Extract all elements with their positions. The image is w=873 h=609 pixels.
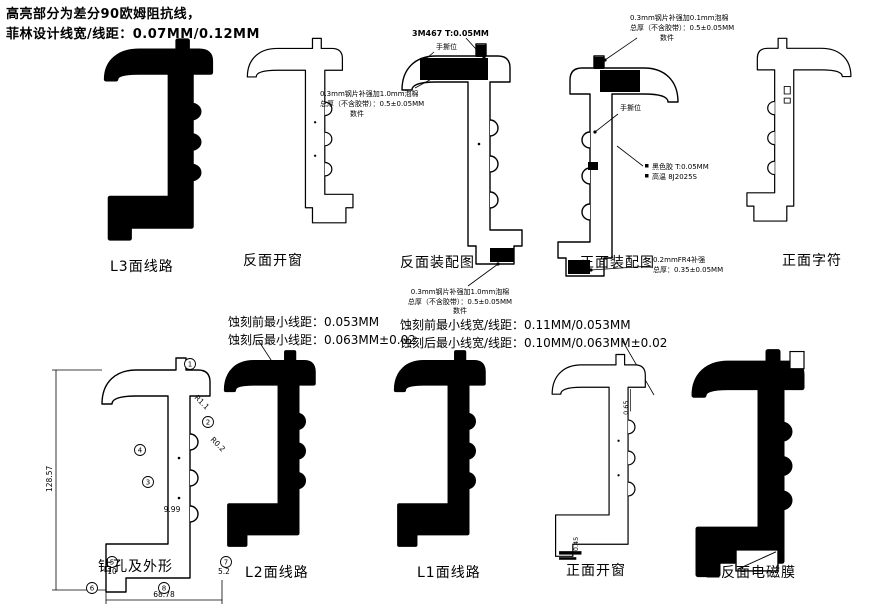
drill-dot — [178, 457, 181, 460]
figure-label-front-assembly: 正面装配图 — [580, 252, 655, 272]
trunk-bumps — [190, 434, 198, 522]
trunk-bumps — [582, 132, 590, 220]
front-silkscreen-drawing — [740, 30, 870, 246]
trunk-bumps — [490, 120, 498, 208]
figure-label-drill-outline: 钻孔及外形 — [98, 556, 173, 576]
balloon-3: 3 — [143, 477, 154, 488]
trunk-bumps — [768, 101, 775, 174]
figure-label-l3: L3面线路 — [110, 256, 174, 276]
ink-note-line2: 高温 8J2025S — [652, 172, 698, 181]
ink-note-line1: 黑色胶 T:0.05MM — [652, 162, 709, 171]
balloon-6: 6 — [87, 583, 98, 594]
film-tab-outline — [790, 352, 804, 369]
stiffener-patch-arm — [420, 58, 488, 80]
flex-body — [747, 38, 851, 221]
l1-circuit-drawing — [378, 344, 500, 558]
svg-text:4: 4 — [138, 447, 143, 455]
figure-label-emi-film: 正反面电磁膜 — [706, 562, 796, 582]
stiffener-patch-foot — [490, 248, 514, 262]
fr4-note-line2: 总厚：0.35±0.05MM — [653, 265, 723, 274]
window-bar — [559, 551, 581, 554]
balloon-1: 1 — [185, 359, 196, 370]
trunk-bumps — [628, 420, 635, 496]
emi-film-drawing — [672, 342, 822, 590]
svg-text:1: 1 — [188, 361, 192, 369]
adhesive-annotation: 3M467 T:0.05MM — [412, 29, 489, 38]
balloon-8: 8 — [159, 583, 170, 594]
stiffener-patch-arm — [600, 70, 640, 92]
dim-52: 5.2 — [218, 567, 230, 576]
l2-circuit-drawing — [208, 344, 330, 558]
stiffener-note-line2: 总厚（不含胶带）：0.5±0.05MM — [630, 23, 734, 32]
svg-text:7: 7 — [224, 559, 228, 567]
stiffener-patch-hook — [594, 57, 604, 69]
figure-label-l2: L2面线路 — [245, 562, 309, 582]
svg-text:6: 6 — [90, 585, 95, 593]
trunk-bumps — [782, 424, 790, 508]
trunk-bumps — [467, 415, 474, 487]
trunk-bumps — [297, 415, 304, 487]
l3-circuit-drawing — [85, 32, 230, 252]
svg-text:3: 3 — [146, 479, 150, 487]
figure-label-front-window: 正面开窗 — [566, 560, 626, 580]
svg-text:8: 8 — [162, 585, 166, 593]
fpc-engineering-drawing: 高亮部分为差分90欧姆阻抗线， 菲林设计线宽/线距：0.07MM/0.12MM … — [0, 0, 873, 609]
legend-square — [645, 174, 649, 178]
stiffener-note-line1: 0.3mm钢片补强加0.1mm泡棉 — [630, 13, 729, 22]
stiffener-note-line2: 总厚（不含胶带）：0.5±0.05MM — [320, 99, 424, 108]
drill-dot — [314, 155, 316, 157]
figure-label-back-window: 反面开窗 — [243, 250, 303, 270]
balloon-7: 7 — [221, 557, 232, 568]
tear-tab-annotation: 手撕位 — [620, 103, 641, 112]
etch-right-line1: 蚀刻前最小线宽/线距：0.11MM/0.053MM — [400, 316, 667, 334]
fr4-note-line1: 0.2mmFR4补强 — [653, 255, 705, 264]
drill-dot — [314, 121, 316, 123]
drill-dot — [617, 440, 619, 442]
height-dim-text: 128.57 — [45, 466, 54, 492]
drill-dot — [178, 497, 181, 500]
front-window-drawing: 0.65 0.45 — [528, 342, 666, 574]
stiffener-note-line1: 0.3mm钢片补强加1.0mm泡棉 — [320, 89, 419, 98]
drill-dot — [617, 474, 619, 476]
dim-045-text: 0.45 — [572, 537, 580, 551]
drill-dot — [478, 143, 481, 146]
dim-065-text: 0.65 — [622, 401, 630, 415]
legend-square — [645, 164, 649, 168]
figure-label-front-silkscreen: 正面字符 — [782, 250, 842, 270]
tear-tab-annotation: 手撕位 — [436, 42, 457, 51]
header-note-line1: 高亮部分为差分90欧姆阻抗线， — [6, 5, 260, 25]
flex-part — [552, 355, 645, 557]
stiffener-note-line3: 数件 — [660, 33, 674, 42]
figure-label-l1: L1面线路 — [417, 562, 481, 582]
figure-label-back-assembly: 反面装配图 — [400, 252, 475, 272]
dim-999: 9.99 — [164, 505, 181, 514]
flex-part — [402, 44, 522, 264]
bottom-note-line2: 总厚（不含胶带）：0.5±0.05MM — [408, 297, 512, 306]
trunk-bumps — [191, 105, 199, 179]
stiffener-patch-trunk — [588, 162, 598, 170]
stiffener-note-line3: 数件 — [350, 109, 364, 118]
bottom-note-line1: 0.3mm钢片补强加1.0mm泡棉 — [411, 287, 510, 296]
balloon-4: 4 — [135, 445, 146, 456]
bottom-note-line3: 数件 — [453, 306, 467, 315]
